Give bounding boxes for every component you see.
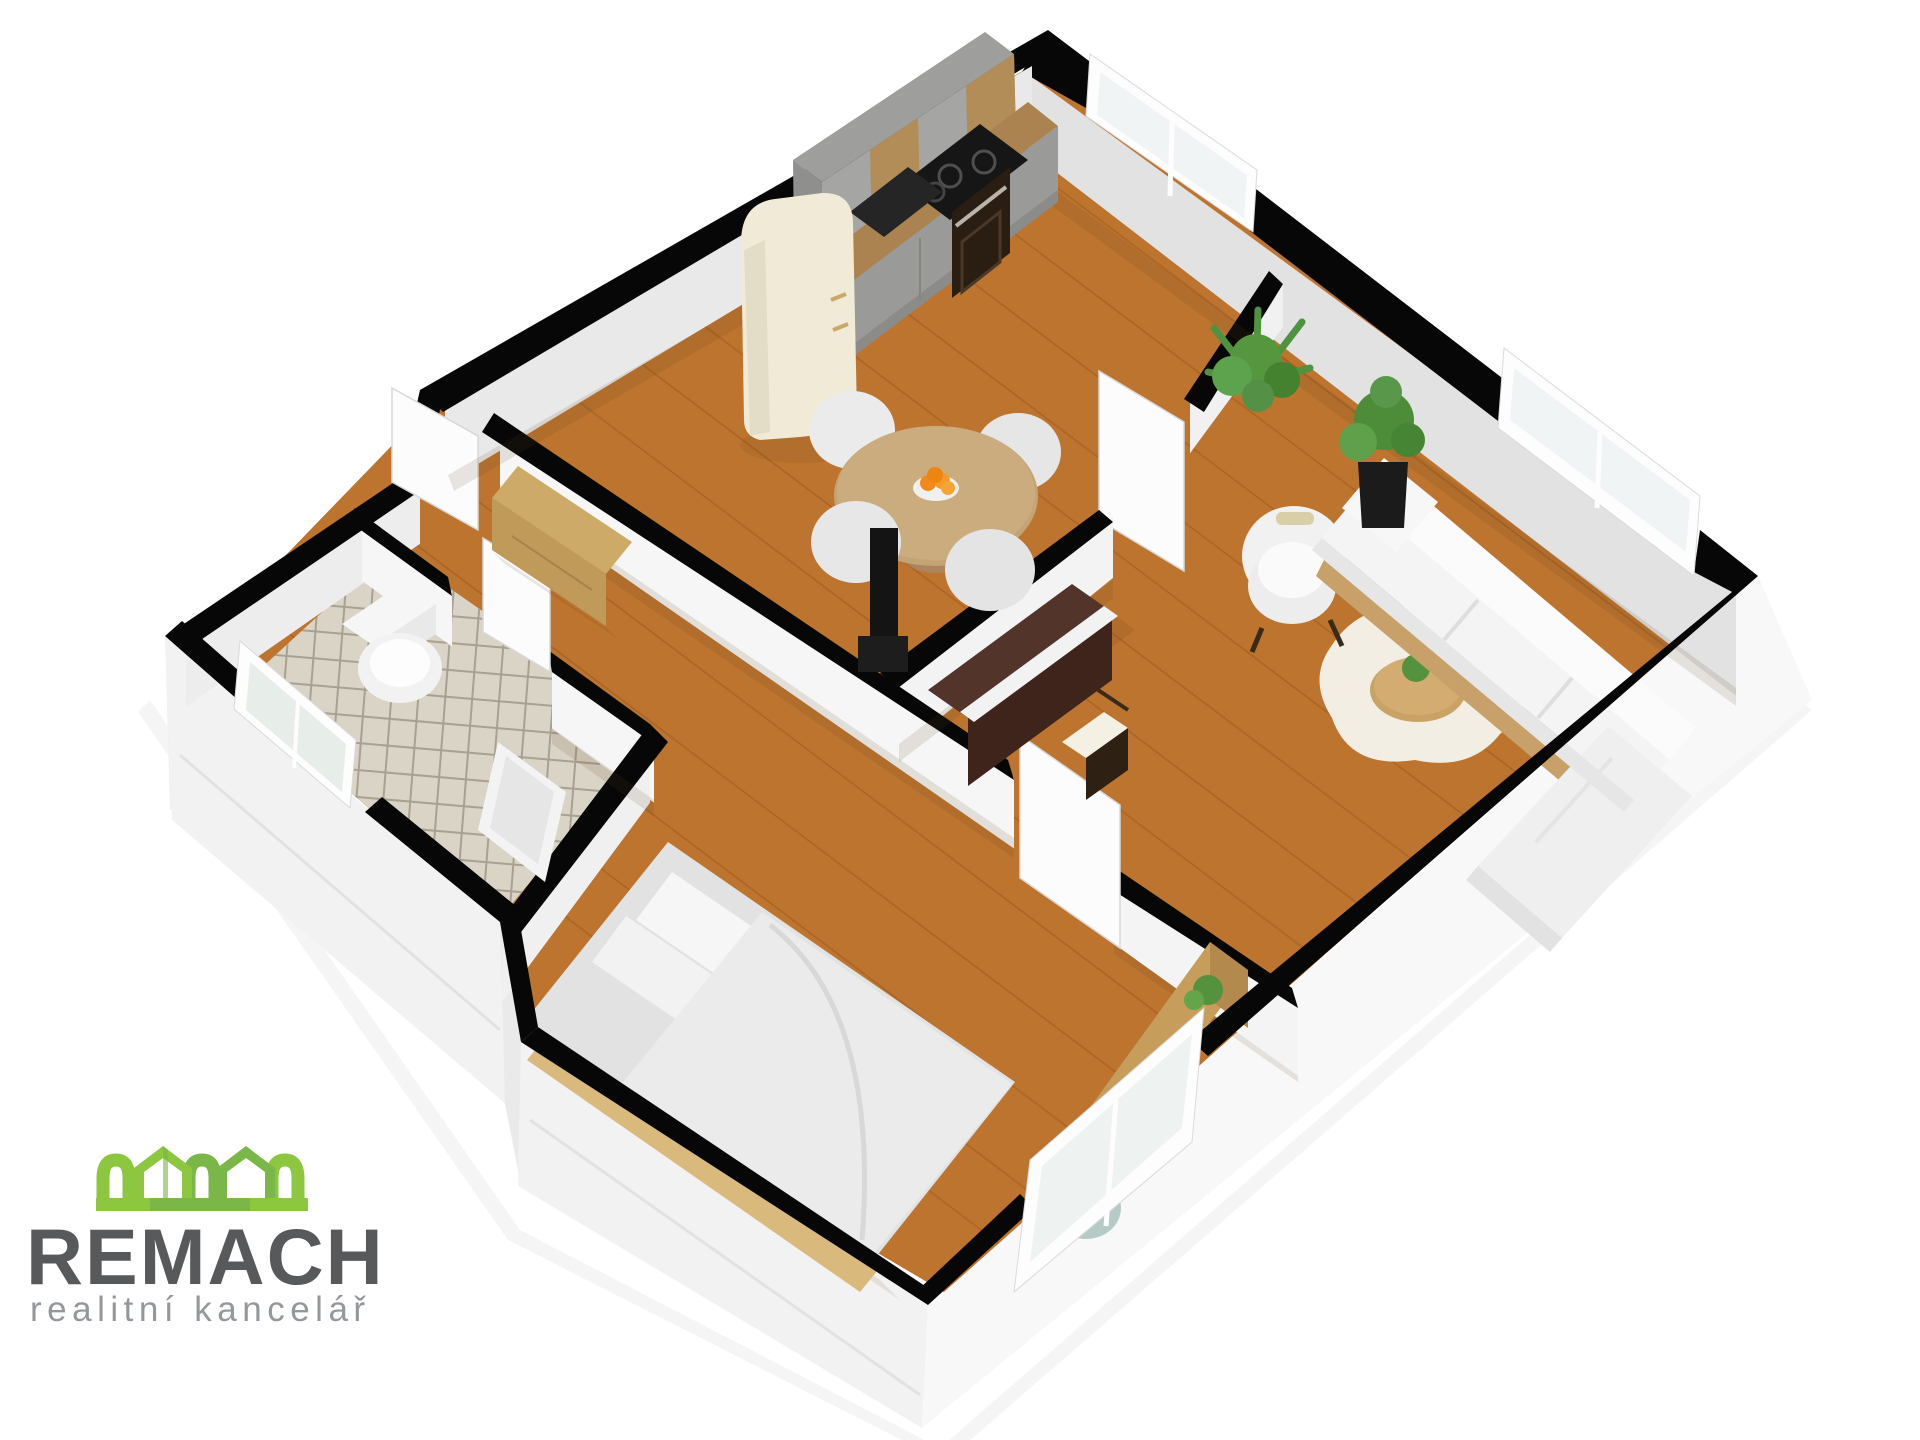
svg-text:realitní kancelář: realitní kancelář — [30, 1290, 371, 1329]
svg-text:REMACH: REMACH — [26, 1212, 385, 1301]
